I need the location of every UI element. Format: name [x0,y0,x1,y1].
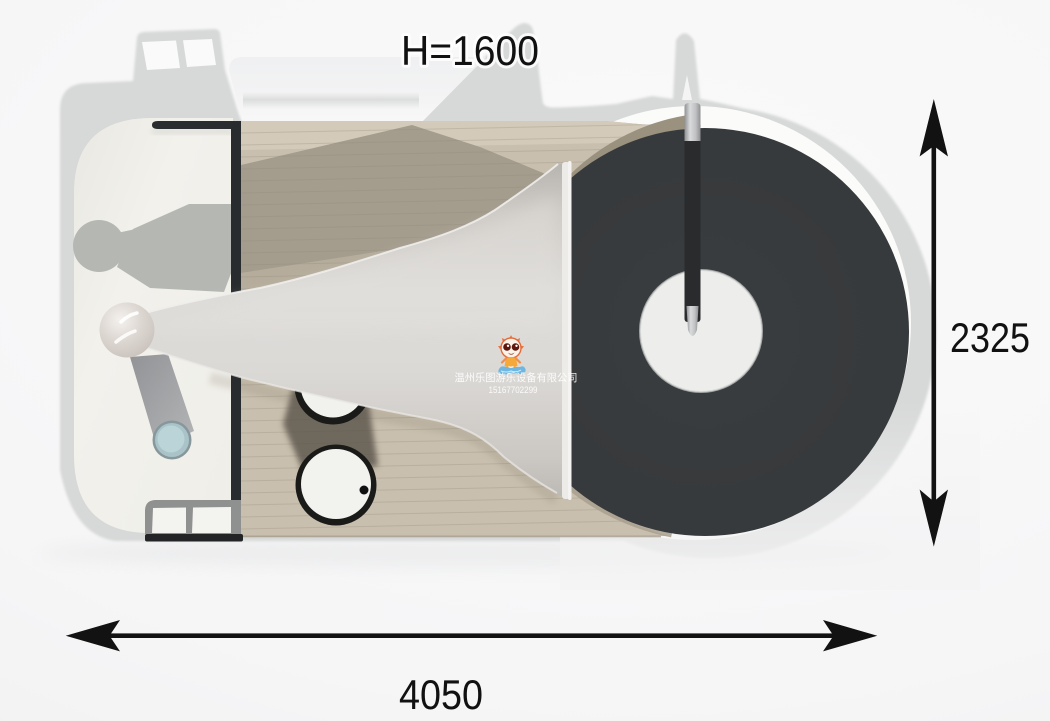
svg-text:15167702299: 15167702299 [489,385,538,396]
svg-text:4050: 4050 [399,671,483,718]
svg-text:温州乐图游乐设备有限公司: 温州乐图游乐设备有限公司 [455,371,578,384]
svg-text:H=1600: H=1600 [401,27,539,74]
svg-text:2325: 2325 [950,314,1030,361]
